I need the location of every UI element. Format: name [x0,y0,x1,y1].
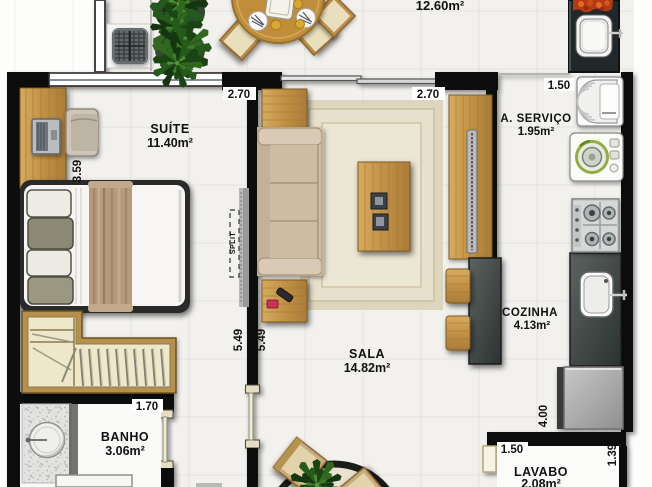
svg-text:1.50: 1.50 [501,444,523,456]
svg-text:5.49: 5.49 [256,329,268,351]
svg-text:12.60m²: 12.60m² [416,0,465,13]
svg-text:5.49: 5.49 [233,329,245,351]
svg-text:3.59: 3.59 [72,160,84,182]
svg-text:A. SERVIÇO: A. SERVIÇO [500,113,571,125]
svg-text:BANHO: BANHO [101,430,149,444]
svg-text:2.70: 2.70 [417,89,439,101]
svg-text:4.00: 4.00 [538,405,550,427]
svg-text:SALA: SALA [349,347,385,361]
svg-text:SPLIT: SPLIT [230,232,237,255]
svg-text:2.70: 2.70 [228,89,250,101]
svg-text:COZINHA: COZINHA [502,307,558,319]
svg-text:11.40m²: 11.40m² [147,136,193,150]
svg-text:1.70: 1.70 [136,401,158,413]
svg-text:3.06m²: 3.06m² [105,444,145,458]
svg-text:2.08m²: 2.08m² [521,477,561,487]
svg-text:SUÍTE: SUÍTE [150,121,189,136]
svg-text:1.39: 1.39 [607,444,619,466]
svg-text:14.82m²: 14.82m² [344,361,391,375]
svg-text:4.13m²: 4.13m² [514,320,551,332]
svg-text:1.95m²: 1.95m² [518,126,555,138]
svg-text:1.50: 1.50 [548,80,570,92]
